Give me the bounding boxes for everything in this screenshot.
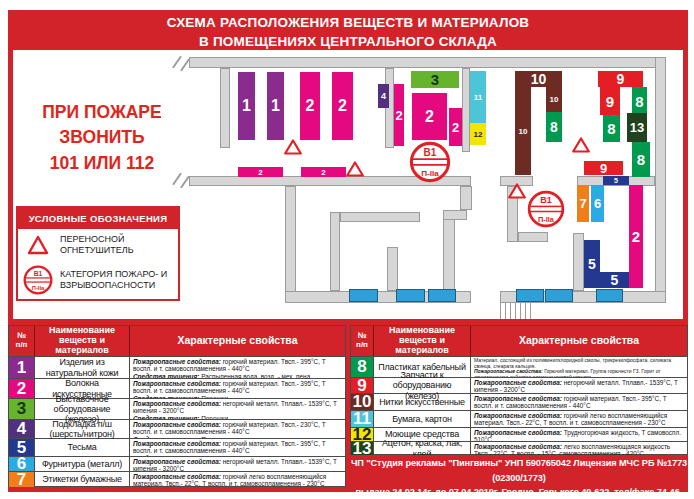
fire-category-sign: В1П-IIa [527, 190, 565, 228]
material-name: Нитки искусственные [374, 394, 471, 410]
fire-properties-label: Пожароопасные свойства: [133, 380, 221, 387]
footer-line2: выдана 24.02.14г. до 07.04.2019г. Гродно… [350, 485, 688, 499]
table-body: 1Изделия из натуральной кожиПожароопасны… [9, 356, 345, 487]
plan-wall [387, 247, 398, 291]
material-name: Изделия из натуральной кожи [35, 357, 130, 378]
material-name: Выставочное оборудование (железо) [35, 399, 130, 419]
plan-block-1: 1 [267, 72, 284, 140]
footer-line1: ЧП "Студия рекламы "Пингвины" УНП 590765… [350, 456, 688, 485]
plan-block-2: 2 [300, 72, 320, 140]
material-name: Бумага, картон [374, 411, 471, 427]
extinguishing-means-label: Средства тушения: [133, 395, 199, 398]
plan-wall [573, 233, 584, 291]
material-properties: Пожароопасные свойства: негорючий металл… [130, 457, 345, 471]
extinguishing-means: Средства тушения: Распыленная вода, возд… [133, 373, 342, 378]
fire-properties: Пожароопасные свойства: легко воспламеня… [474, 443, 684, 455]
material-properties: Пожароопасные свойства: негорючий металл… [130, 399, 345, 419]
table-row: 10Нитки искусственныеПожароопасные свойс… [351, 393, 687, 410]
row-number: 10 [351, 394, 374, 410]
col-header-name: Наименование веществ и материалов [374, 326, 471, 356]
plan-wall [462, 68, 470, 152]
fire-properties-label: Пожароопасные свойства: [474, 379, 562, 386]
material-properties: Пожароопасные свойства: Трудногорючая жи… [471, 428, 687, 441]
fire-properties: Пожароопасные свойства: горючий материал… [133, 380, 342, 395]
plan-wall [443, 210, 455, 291]
fire-properties-label: Пожароопасные свойства: [133, 473, 221, 480]
plan-window [596, 289, 623, 302]
row-number: 2 [9, 379, 35, 398]
fire-properties: Пожароопасные свойства: горючий материал… [474, 395, 684, 410]
table-row: 4Подкладка п/ш (шерсть/нитрон)Пожароопас… [9, 419, 345, 438]
plan-window [428, 289, 456, 302]
plan-block-3: 3 [411, 71, 459, 88]
fire-properties: Пожароопасные свойства: горючий материал… [133, 440, 342, 455]
extinguishing-means-label: Средства тушения: [133, 373, 199, 378]
plan-block-2: 2 [332, 72, 353, 140]
material-name: Ацетон, краска, лак, клей [374, 442, 471, 455]
row-number: 4 [9, 420, 35, 438]
plan-block-5: 5 [603, 176, 629, 185]
material-name: Запчасти к оборудованию (железо) [374, 378, 471, 393]
svg-text:В1: В1 [540, 195, 552, 205]
material-name: Подкладка п/ш (шерсть/нитрон) [35, 420, 130, 438]
material-properties: Пожароопасные свойства: легко воспламеня… [471, 442, 687, 455]
plan-wall [330, 212, 340, 291]
plan-block-13: 13 [627, 113, 647, 142]
materials-table-left: № п/п Наименование веществ и материалов … [8, 325, 346, 487]
plan-block-1: 1 [238, 72, 255, 140]
row-number: 9 [351, 378, 374, 393]
plan-wall [518, 232, 548, 242]
plan-block-8: 8 [546, 112, 562, 142]
material-properties: Пожароопасные свойства: горючий материал… [471, 394, 687, 410]
material-properties: Пожароопасные свойства: горючий материал… [130, 357, 345, 378]
table-row: 7Этикетки бумажныеПожароопасные свойства… [9, 471, 345, 487]
col-header-num: № п/п [351, 326, 374, 356]
fire-properties: Пожароопасные свойства: горючий легко во… [133, 473, 342, 487]
fire-safety-poster: СХЕМА РАСПОЛОЖЕНИЯ ВЕЩЕСТВ И МАТЕРИАЛОВ … [0, 0, 694, 499]
fire-properties-label: Пожароопасные свойства: [133, 440, 221, 447]
plan-block-7: 7 [577, 185, 589, 222]
table-row: 6Фурнитура (металл)Пожароопасные свойств… [9, 456, 345, 471]
extinguishing-means: Средства тушения: Порошки. [133, 395, 342, 398]
plan-block-4: 4 [378, 84, 389, 108]
plan-block-11: 11 [470, 71, 486, 123]
plan-block-8: 8 [603, 115, 620, 142]
plan-block-9: 9 [584, 161, 623, 175]
plan-window [349, 289, 378, 302]
plan-wall [460, 186, 472, 210]
svg-text:В1: В1 [424, 147, 437, 158]
row-number: 3 [9, 399, 35, 419]
plan-block-5: 5 [600, 272, 629, 288]
fire-category-sign: В1П-IIa [409, 141, 451, 183]
plan-block-10: 10 [515, 87, 531, 175]
extinguisher-triangle-icon [508, 183, 526, 199]
table-row: 11Бумага, картонПожароопасные свойства: … [351, 410, 687, 427]
extinguishing-means: Средства тушения: Порошки. [133, 455, 342, 456]
plan-wall [385, 68, 394, 148]
svg-text:П-IIa: П-IIa [421, 169, 439, 178]
fire-properties-label: Пожароопасные свойства: [133, 400, 221, 407]
material-properties: Пожароопасные свойства: горючий материал… [130, 439, 345, 456]
plan-wall [220, 68, 230, 148]
plan-block-9: 9 [600, 87, 620, 115]
plan-block-9: 9 [598, 71, 643, 87]
col-header-props: Характерные свойства [471, 326, 687, 356]
plan-block-2: 2 [629, 185, 643, 288]
plan-block-6: 6 [591, 185, 604, 222]
table-header: № п/п Наименование веществ и материалов … [351, 326, 687, 356]
col-header-num: № п/п [9, 326, 35, 356]
plan-block-10: 10 [515, 71, 562, 87]
plan-window [516, 289, 544, 302]
row-number: 1 [9, 357, 35, 378]
fire-properties: Пожароопасные свойства: Трудногорючая жи… [474, 429, 684, 441]
table-row: 1Изделия из натуральной кожиПожароопасны… [9, 356, 345, 378]
row-number: 8 [351, 357, 374, 377]
table-body: 8Пластикат кабельныйМатериал, состоящий … [351, 356, 687, 455]
extinguisher-triangle-icon [346, 161, 364, 177]
plan-wall [340, 212, 420, 222]
plan-block-8: 8 [632, 142, 650, 177]
table-row: 3Выставочное оборудование (железо)Пожаро… [9, 398, 345, 419]
plan-wall [285, 186, 296, 303]
fire-properties-label: Пожароопасные свойства: [133, 458, 221, 465]
material-name: Этикетки бумажные [35, 472, 130, 487]
extinguishing-means-label: Средства тушения: [133, 455, 199, 456]
fire-properties-label: Пожароопасные свойства: [474, 429, 562, 436]
material-name: Фурнитура (металл) [35, 457, 130, 471]
plan-stairs [500, 303, 534, 319]
plan-block-2: 2 [301, 167, 346, 177]
plan-block-2: 2 [394, 84, 404, 146]
material-name: Тесьма [35, 439, 130, 456]
table-header: № п/п Наименование веществ и материалов … [9, 326, 345, 356]
fire-properties-label: Пожароопасные свойства: [133, 358, 221, 365]
fire-properties-label: Пожароопасные свойства: [474, 443, 562, 450]
fire-properties: Пожароопасные свойства: негорючий металл… [474, 379, 684, 393]
table-row: 13Ацетон, краска, лак, клейПожароопасные… [351, 441, 687, 455]
plan-wall [655, 57, 666, 303]
materials-table-right: № п/п Наименование веществ и материалов … [350, 325, 688, 455]
plan-block-2: 2 [412, 93, 447, 140]
plan-block-10: 10 [546, 87, 562, 112]
material-properties: Пожароопасные свойства: горючий материал… [130, 379, 345, 398]
fire-properties: Пожароопасные свойства: негорючий металл… [133, 400, 342, 415]
fire-properties: Пожароопасные свойства: горючий легко во… [474, 412, 684, 427]
row-number: 13 [351, 442, 374, 455]
fire-properties-label: Пожароопасные свойства: [133, 421, 221, 428]
extinguishing-means: Средства тушения: Порошки. [133, 415, 342, 419]
plan-block-2: 2 [238, 167, 283, 177]
fire-properties: Пожароопасные свойства: негорючий металл… [133, 458, 342, 471]
plan-wall [189, 57, 666, 68]
extinguishing-means: Средства тушения: Порошки. [133, 436, 342, 438]
material-properties: Пожароопасные свойства: горючий легко во… [471, 411, 687, 427]
plan-block-8: 8 [632, 87, 647, 115]
fire-properties-label: Пожароопасные свойства: [474, 368, 543, 374]
table-row: 5ТесьмаПожароопасные свойства: горючий м… [9, 438, 345, 456]
plan-window [545, 289, 573, 302]
fire-properties: Пожароопасные свойства: горючий материал… [133, 358, 342, 373]
material-properties: Материал, состоящий из поливинилхлоридно… [471, 357, 687, 377]
fire-properties: Пожароопасные свойства: Горючий материал… [474, 369, 684, 377]
material-properties: Пожароопасные свойства: горючий легко во… [130, 472, 345, 487]
col-header-name: Наименование веществ и материалов [35, 326, 130, 356]
fire-properties-label: Пожароопасные свойства: [474, 395, 562, 402]
plan-block-12: 12 [470, 123, 486, 145]
plan-wall [443, 210, 467, 220]
plan-window [396, 289, 425, 302]
plan-block-5: 5 [584, 240, 600, 288]
material-properties: Пожароопасные свойства: негорючий металл… [471, 378, 687, 393]
col-header-props: Характерные свойства [130, 326, 345, 356]
table-row: 9Запчасти к оборудованию (железо)Пожароо… [351, 377, 687, 393]
extinguishing-means-label: Средства тушения: [133, 415, 199, 419]
material-properties: Пожароопасные свойства: горючий материал… [130, 420, 345, 438]
extinguisher-triangle-icon [284, 139, 302, 155]
extinguishing-means-label: Средства тушения: [133, 436, 199, 438]
row-number: 7 [9, 472, 35, 487]
footer-license-bar: ЧП "Студия рекламы "Пингвины" УНП 590765… [350, 455, 688, 487]
fire-properties-label: Пожароопасные свойства: [474, 412, 562, 419]
extinguisher-triangle-icon [572, 137, 590, 153]
svg-text:П-IIa: П-IIa [538, 215, 555, 224]
fire-properties: Пожароопасные свойства: горючий материал… [133, 421, 342, 436]
